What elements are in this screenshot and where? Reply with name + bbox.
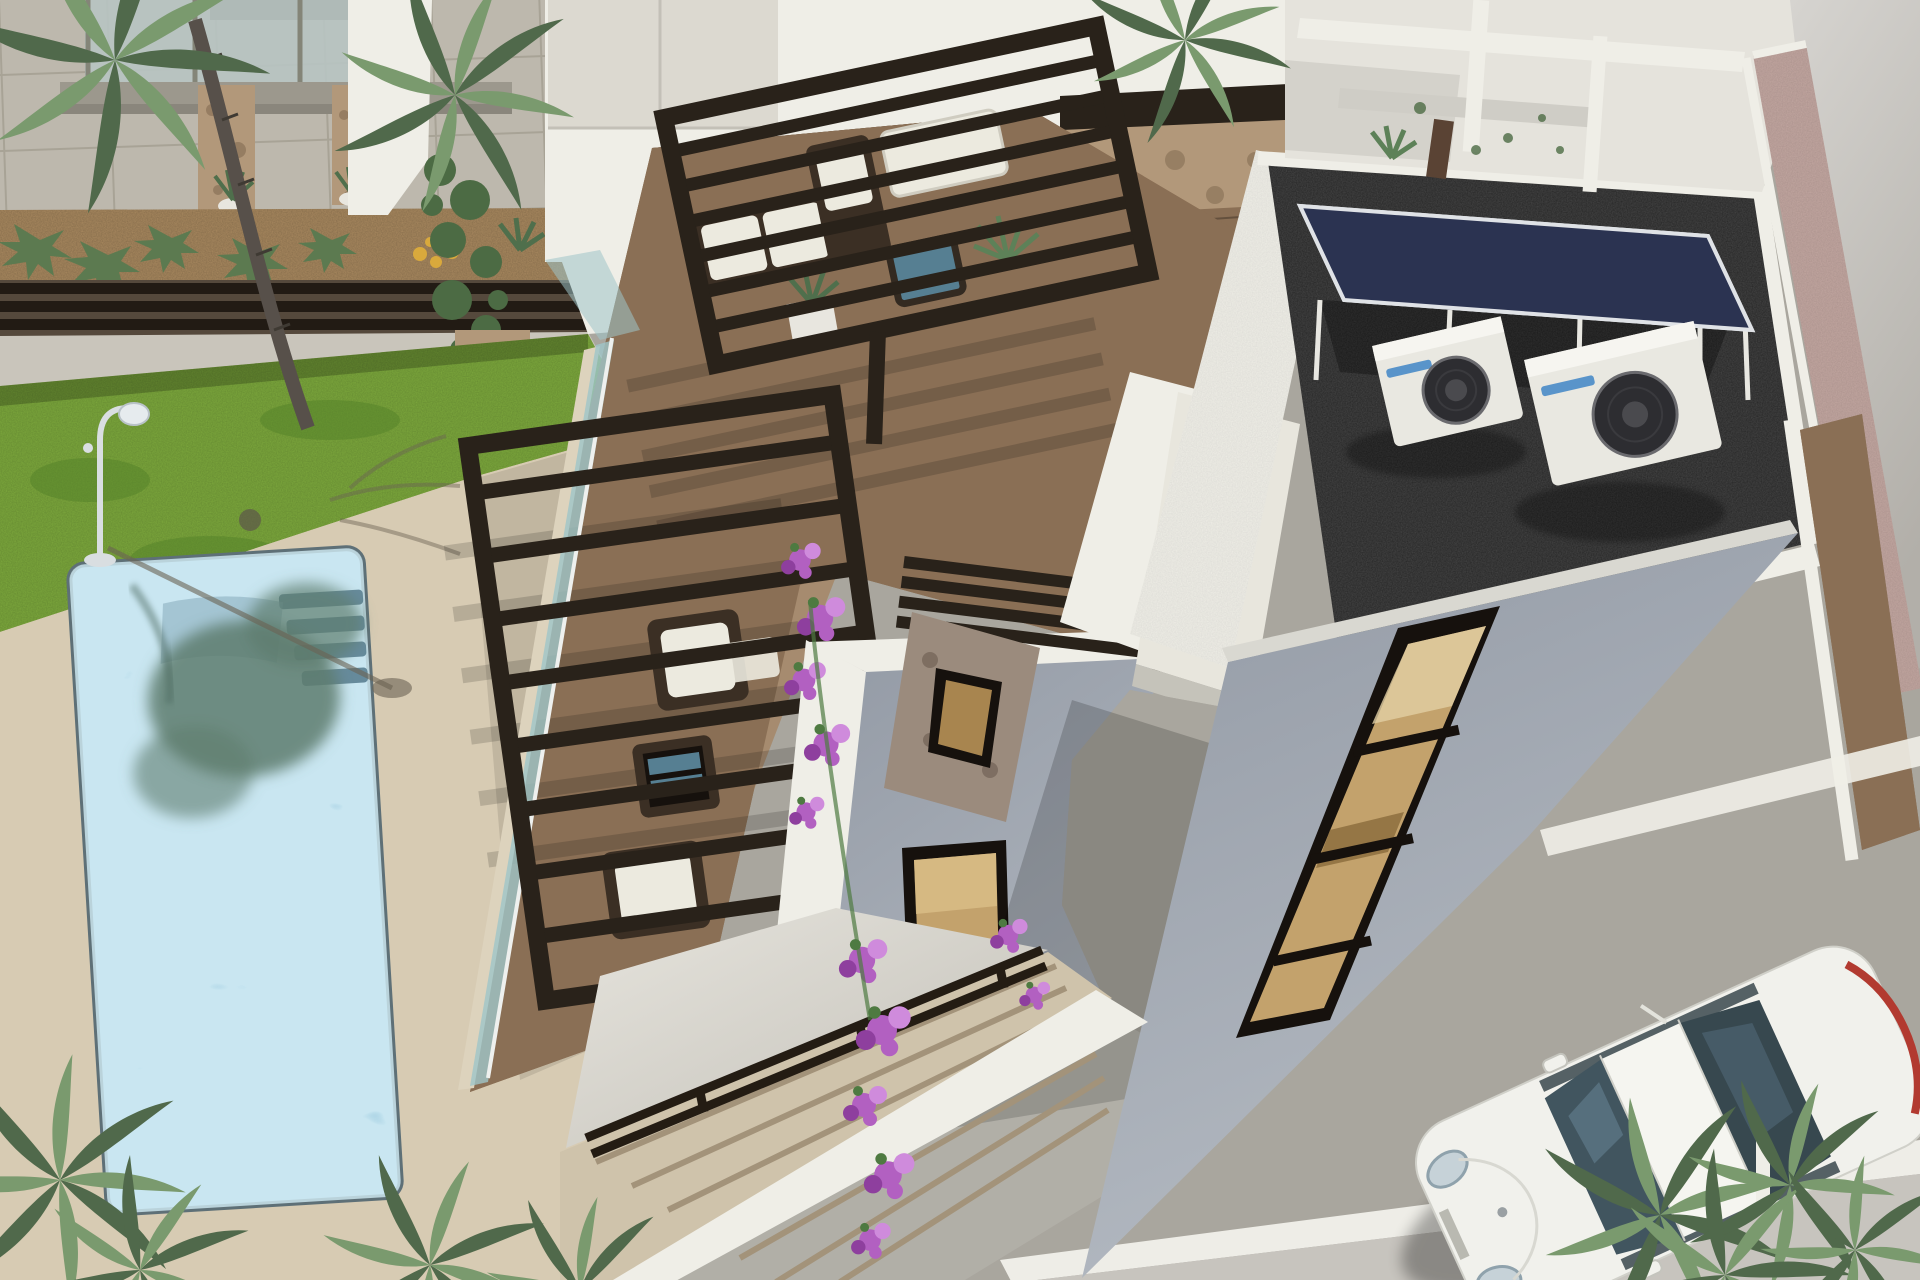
shower-knob [83,443,93,453]
shower-head [119,403,149,425]
render-canvas [0,0,1920,1280]
neighbor-rooftops [1285,0,1830,192]
villa-aerial-render [0,0,1920,1280]
swimming-pool [68,547,401,1214]
